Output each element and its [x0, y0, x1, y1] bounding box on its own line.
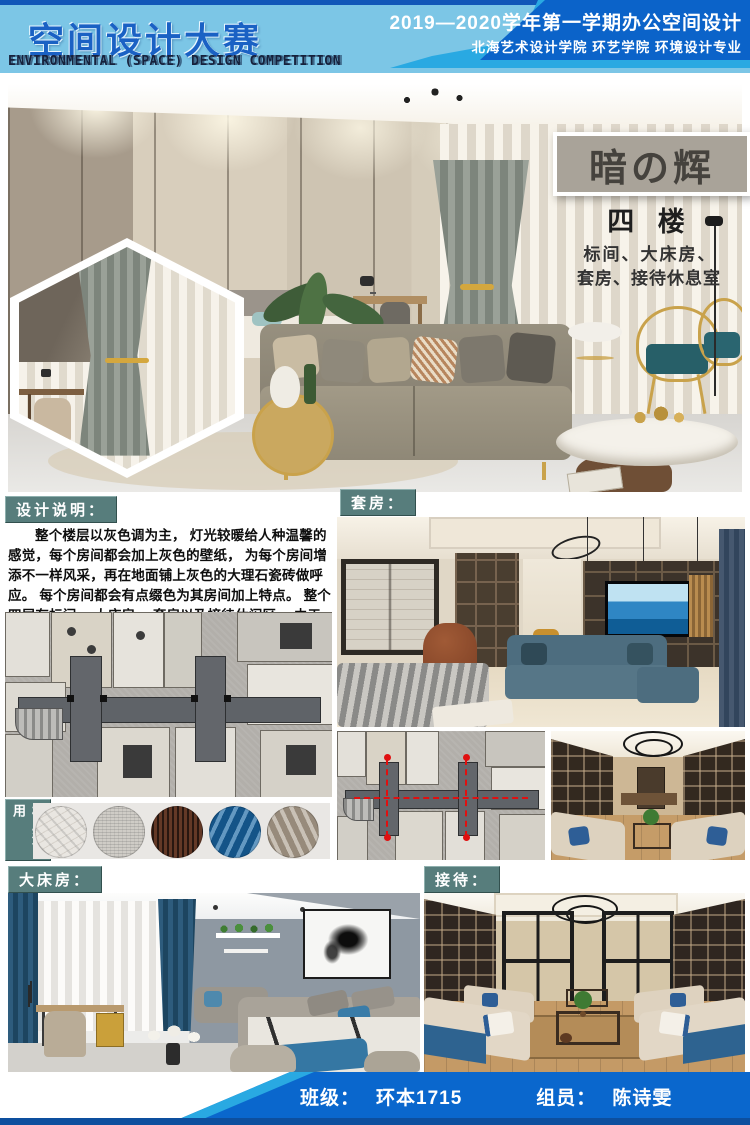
blue-curtain — [158, 899, 196, 1031]
suite-sofa-pillow — [627, 643, 653, 665]
desk-lamp — [360, 276, 374, 286]
plan-table-dot — [67, 627, 76, 636]
back-desk — [621, 793, 677, 805]
tv-screen — [605, 581, 691, 637]
artwork-ink — [313, 917, 377, 967]
plan-stair — [15, 708, 63, 740]
bed-bench — [230, 1045, 296, 1072]
bed-bench — [364, 1051, 420, 1072]
plan-stair — [343, 798, 374, 821]
plan-room — [337, 816, 368, 860]
evacuation-route-v — [465, 759, 467, 836]
project-title: 暗の辉 — [589, 137, 715, 192]
chair-cushion — [704, 332, 740, 358]
sofa-pillow-blue — [670, 993, 686, 1007]
plan-wall-mark — [224, 695, 231, 702]
pillow — [506, 332, 557, 385]
king-room-photo — [8, 893, 420, 1072]
plan-corridor-h — [18, 697, 321, 723]
ring-chandelier — [635, 739, 673, 757]
suite-label: 套房： — [340, 489, 416, 516]
hexagon-photo — [19, 247, 235, 469]
header-term-line: 2019—2020学年第一学期办公空间设计 — [389, 8, 742, 35]
plan-corridor-h — [345, 790, 538, 809]
wall-shelf — [216, 933, 280, 938]
reception-photo — [424, 893, 745, 1072]
materials-strip — [33, 803, 330, 859]
sofa-pillow-striped — [483, 1011, 515, 1037]
ceiling-recess — [429, 517, 661, 549]
plan-corridor-v — [458, 762, 479, 836]
pendant-light — [697, 517, 698, 565]
member-label: 组员： — [536, 1083, 596, 1110]
plan-corridor-v — [70, 656, 101, 762]
gold-decor — [628, 402, 688, 428]
evacuation-route-h — [354, 797, 529, 799]
sofa-pillow-striped — [659, 1011, 691, 1037]
material-swatch-wallpaper — [93, 806, 145, 858]
class-label: 班级： — [300, 1083, 360, 1110]
plan-room — [499, 814, 545, 860]
rooms-line2: 套房、接待休息室 — [549, 264, 749, 289]
evacuation-route-v — [386, 759, 388, 836]
coffee-table — [633, 823, 671, 849]
spotlight — [213, 905, 218, 910]
sofa-seam — [413, 386, 415, 456]
suite-sofa-pillow — [521, 643, 547, 665]
suite-photo — [337, 517, 745, 727]
pillow — [367, 337, 412, 384]
plan-table-dot — [87, 645, 96, 654]
material-swatch-blue-fabric — [209, 806, 261, 858]
king-room-label: 大床房： — [8, 866, 102, 893]
ceiling-lamp — [400, 86, 470, 106]
plan-room — [395, 811, 443, 860]
floor-plan-render — [5, 612, 332, 797]
small-sofa-pillow — [204, 991, 222, 1007]
flowers-white — [134, 1019, 214, 1049]
class-value: 环本1715 — [376, 1083, 462, 1110]
plan-wall-mark — [67, 695, 74, 702]
plan-corridor-v — [195, 656, 226, 762]
sofa-pillow-blue — [482, 993, 498, 1007]
material-swatch-wood — [151, 806, 203, 858]
bonsai — [643, 809, 659, 825]
evacuation-dot — [384, 834, 391, 841]
footer: 班级： 环本1715 组员： 陈诗雯 — [0, 1072, 750, 1125]
reception-label: 接待： — [424, 866, 500, 893]
pillow-patterned — [409, 335, 458, 384]
floor-label: 四 楼 — [553, 200, 747, 239]
curtain-tieback — [460, 284, 494, 290]
credits-spacer — [478, 1083, 520, 1110]
footer-bottom-strip — [0, 1118, 750, 1125]
vase-white — [270, 366, 300, 408]
competition-title-en: ENVIRONMENTAL (SPACE) DESIGN COMPETITION — [8, 54, 341, 69]
inset-lamp — [41, 369, 51, 377]
plan-room — [337, 731, 366, 777]
plan-room — [5, 734, 53, 797]
pillow — [320, 338, 366, 384]
design-note-label: 设计说明： — [5, 496, 117, 523]
drawer-unit — [96, 1013, 124, 1047]
rooms-line1: 标间、大床房、 — [553, 240, 747, 265]
plan-corridor-v — [379, 762, 400, 836]
teapot — [560, 1033, 572, 1043]
sofa-pillow-blue — [706, 826, 728, 847]
poster: 空间设计大赛 ENVIRONMENTAL (SPACE) DESIGN COMP… — [0, 0, 750, 1125]
desk-chair — [44, 1011, 86, 1057]
evacuation-plan — [337, 731, 545, 860]
plan-bed — [123, 745, 152, 778]
material-swatch-taupe-fabric — [267, 806, 319, 858]
header: 空间设计大赛 ENVIRONMENTAL (SPACE) DESIGN COMP… — [0, 0, 750, 84]
desk-lamp — [28, 985, 30, 1007]
bottle-green — [304, 364, 316, 404]
wall-shelf — [224, 949, 268, 953]
shelf-plants — [218, 923, 278, 933]
member-value: 陈诗雯 — [612, 1083, 672, 1110]
material-swatch-marble — [35, 806, 87, 858]
sofa-pillow-blue — [568, 826, 590, 847]
suite-library-photo — [551, 731, 745, 860]
plan-room — [485, 731, 545, 767]
side-table-gold — [252, 394, 334, 476]
plan-room — [5, 612, 50, 677]
plan-room — [113, 612, 164, 688]
gold-chair — [698, 298, 742, 398]
plan-wall-mark — [191, 695, 198, 702]
bonsai — [574, 991, 592, 1009]
wood-decor — [689, 575, 713, 637]
evacuation-dot — [463, 834, 470, 841]
plan-bed — [286, 745, 315, 775]
sofa-leg — [542, 462, 546, 480]
project-title-block: 暗の辉 — [553, 132, 750, 196]
plan-wall-mark — [100, 695, 107, 702]
inset-tieback — [105, 358, 148, 363]
plan-table-dot — [136, 631, 145, 640]
evacuation-dot — [384, 754, 391, 761]
suite-sofa-chaise — [637, 667, 699, 703]
plan-room — [406, 731, 439, 785]
round-side-table — [568, 322, 622, 342]
plan-bed — [280, 623, 313, 649]
header-school-line: 北海艺术设计学院 环艺学院 环境设计专业 — [471, 36, 742, 56]
pillow — [458, 334, 506, 384]
footer-credits: 班级： 环本1715 组员： 陈诗雯 — [300, 1083, 672, 1110]
evacuation-dot — [463, 754, 470, 761]
blue-curtain — [719, 529, 745, 727]
